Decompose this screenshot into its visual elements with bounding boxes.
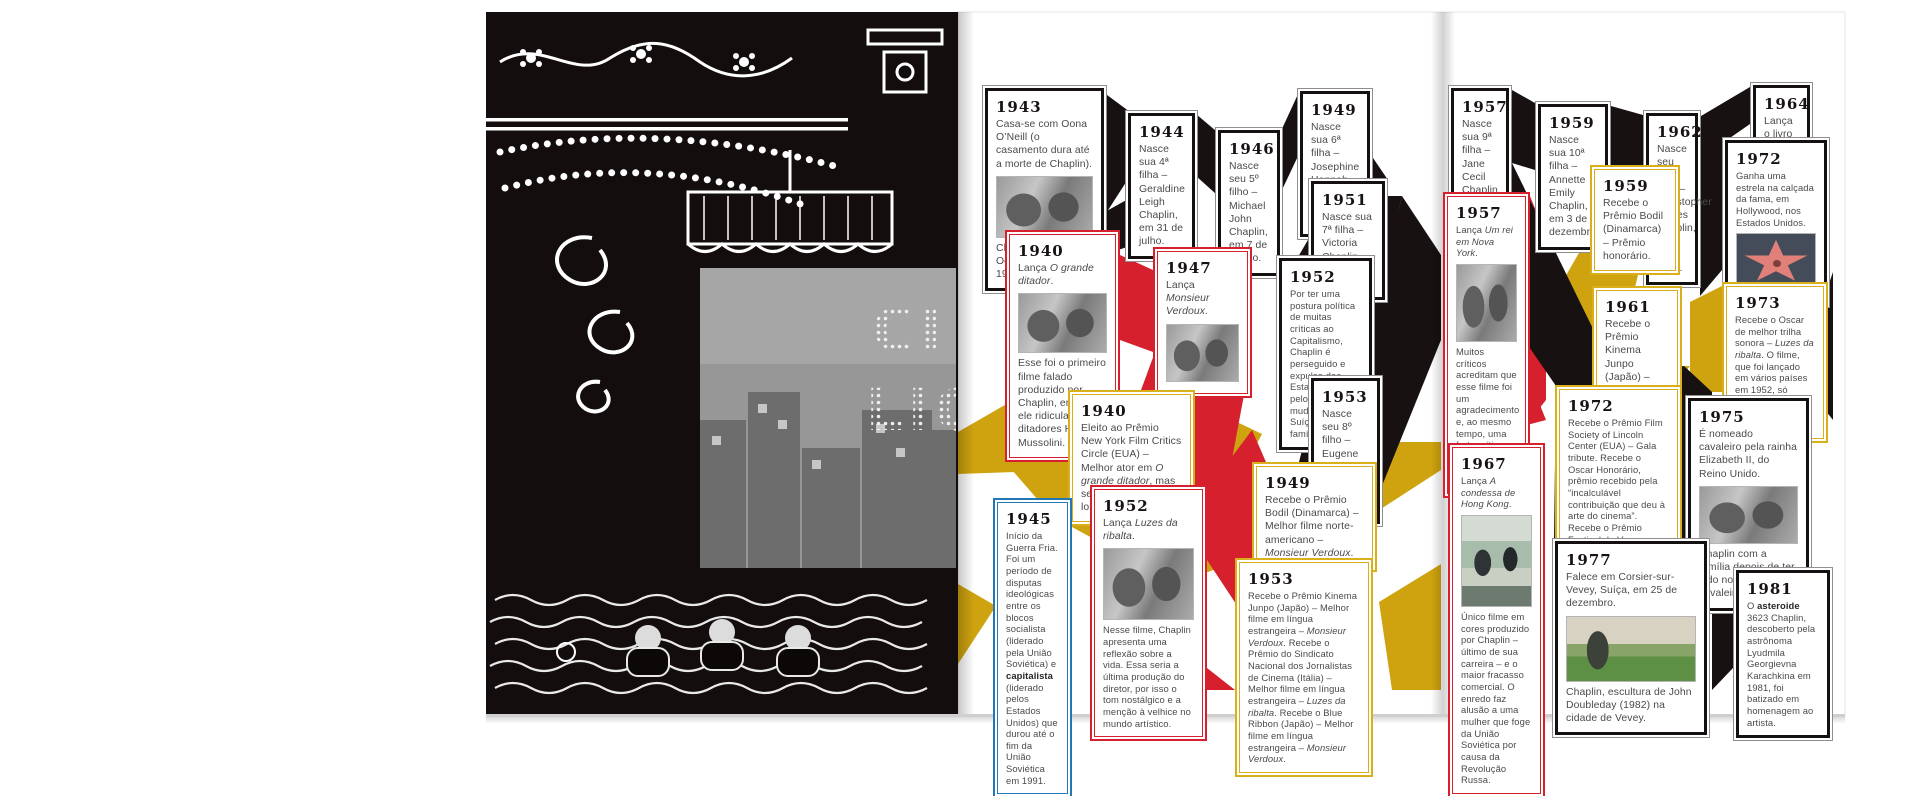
photo-cena-o-grande-ditador — [1018, 293, 1107, 353]
left-fold-shadow — [958, 12, 974, 716]
event-year: 1953 — [1248, 570, 1360, 588]
event-text: Recebe o Prêmio Bodil (Dinamarca) – Prêm… — [1603, 197, 1667, 263]
event-1977-falecimento: 1977 Falece em Corsier-sur-Vevey, Suíça,… — [1552, 538, 1710, 738]
photo-cena-luzes-da-ribalta — [1103, 548, 1194, 620]
event-text: Lança Monsieur Verdoux. — [1166, 279, 1239, 319]
event-year: 1949 — [1265, 474, 1364, 492]
event-year: 1959 — [1549, 114, 1597, 132]
event-1981-asteroide: 1981 O asteroide 3623 Chaplin, descobert… — [1733, 567, 1833, 741]
event-text: Lança Um rei em Nova York. — [1456, 224, 1517, 259]
photo-caption: Nesse filme, Chaplin apresenta uma refle… — [1103, 624, 1194, 729]
event-1952-luzes-da-ribalta: 1952 Lança Luzes da ribalta. Nesse filme… — [1090, 485, 1207, 741]
event-year: 1952 — [1290, 268, 1361, 286]
event-text: Início da Guerra Fria. Foi um período de… — [1006, 530, 1059, 786]
event-year: 1940 — [1081, 402, 1182, 420]
event-year: 1940 — [1018, 242, 1107, 260]
photo-caption: Chaplin, escultura de John Doubleday (19… — [1566, 686, 1696, 726]
event-year: 1972 — [1736, 150, 1816, 168]
event-text: Recebe o Prêmio Kinema Junpo (Japão) – M… — [1248, 590, 1360, 765]
event-year: 1981 — [1747, 580, 1819, 598]
event-text: Ganha uma estrela na calçada da fama, em… — [1736, 170, 1816, 228]
event-text: Nasce sua 4ª filha – Geraldine Leigh Cha… — [1139, 143, 1184, 249]
photo-chaplin-e-oona — [996, 176, 1093, 238]
event-year: 1957 — [1456, 204, 1517, 222]
book-spread: CI LIG — [0, 0, 1920, 796]
event-year: 1952 — [1103, 497, 1194, 515]
photo-cena-um-rei-em-nova-york — [1456, 264, 1517, 342]
event-text: Lança Luzes da ribalta. — [1103, 517, 1194, 543]
event-year: 1975 — [1699, 408, 1798, 426]
event-text: Casa-se com Oona O’Neill (o casamento du… — [996, 118, 1093, 171]
event-text: Lança A condessa de Hong Kong. — [1461, 475, 1532, 510]
event-year: 1947 — [1166, 259, 1239, 277]
event-year: 1943 — [996, 98, 1093, 116]
photo-chaplin-com-a-familia — [1699, 486, 1798, 544]
event-year: 1945 — [1006, 510, 1059, 528]
event-year: 1967 — [1461, 455, 1532, 473]
photo-cena-a-condessa-de-hong-kong — [1461, 515, 1532, 607]
event-text: Falece em Corsier-sur-Vevey, Suíça, em 2… — [1566, 571, 1696, 611]
event-year: 1946 — [1229, 140, 1269, 158]
event-1959-premio-bodil-honorario: 1959 Recebe o Prêmio Bodil (Dinamarca) –… — [1590, 165, 1680, 275]
event-1944-nascimento: 1944 Nasce sua 4ª filha – Geraldine Leig… — [1125, 110, 1198, 262]
event-year: 1959 — [1603, 177, 1667, 195]
event-text: É nomeado cavaleiro pela rainha Elizabet… — [1699, 428, 1798, 481]
event-year: 1957 — [1462, 98, 1498, 116]
event-1945-guerra-fria: 1945 Início da Guerra Fria. Foi um perío… — [993, 498, 1072, 796]
event-year: 1949 — [1311, 101, 1359, 119]
event-year: 1972 — [1568, 397, 1669, 415]
event-year: 1977 — [1566, 551, 1696, 569]
marquee-letters-line1: CI — [872, 296, 946, 364]
event-year: 1961 — [1605, 298, 1669, 316]
photo-cena-monsieur-verdoux — [1166, 324, 1239, 382]
photo-caption: Único filme em cores produzido por Chapl… — [1461, 611, 1532, 786]
event-year: 1944 — [1139, 123, 1184, 141]
event-text: Recebe o Prêmio Bodil (Dinamarca) – Melh… — [1265, 494, 1364, 560]
event-1947-monsieur-verdoux: 1947 Lança Monsieur Verdoux. — [1153, 247, 1252, 398]
event-year: 1973 — [1735, 294, 1815, 312]
event-text: Lança O grande ditador. — [1018, 262, 1107, 288]
photo-estatua-de-chaplin-em-vevey — [1566, 616, 1696, 682]
event-text: O asteroide 3623 Chaplin, descoberto pel… — [1747, 600, 1819, 728]
event-year: 1951 — [1322, 191, 1374, 209]
event-1953-premios: 1953 Recebe o Prêmio Kinema Junpo (Japão… — [1235, 558, 1373, 777]
event-year: 1953 — [1322, 388, 1369, 406]
event-year: 1964 — [1764, 95, 1799, 113]
city-lights-theater-illustration: CI LIG — [486, 12, 987, 716]
movie-screen: CI LIG — [700, 268, 987, 568]
event-1967-a-condessa-de-hong-kong: 1967 Lança A condessa de Hong Kong. Únic… — [1448, 443, 1545, 796]
event-1949-premio-bodil: 1949 Recebe o Prêmio Bodil (Dinamarca) –… — [1252, 462, 1377, 572]
event-year: 1962 — [1657, 123, 1687, 141]
